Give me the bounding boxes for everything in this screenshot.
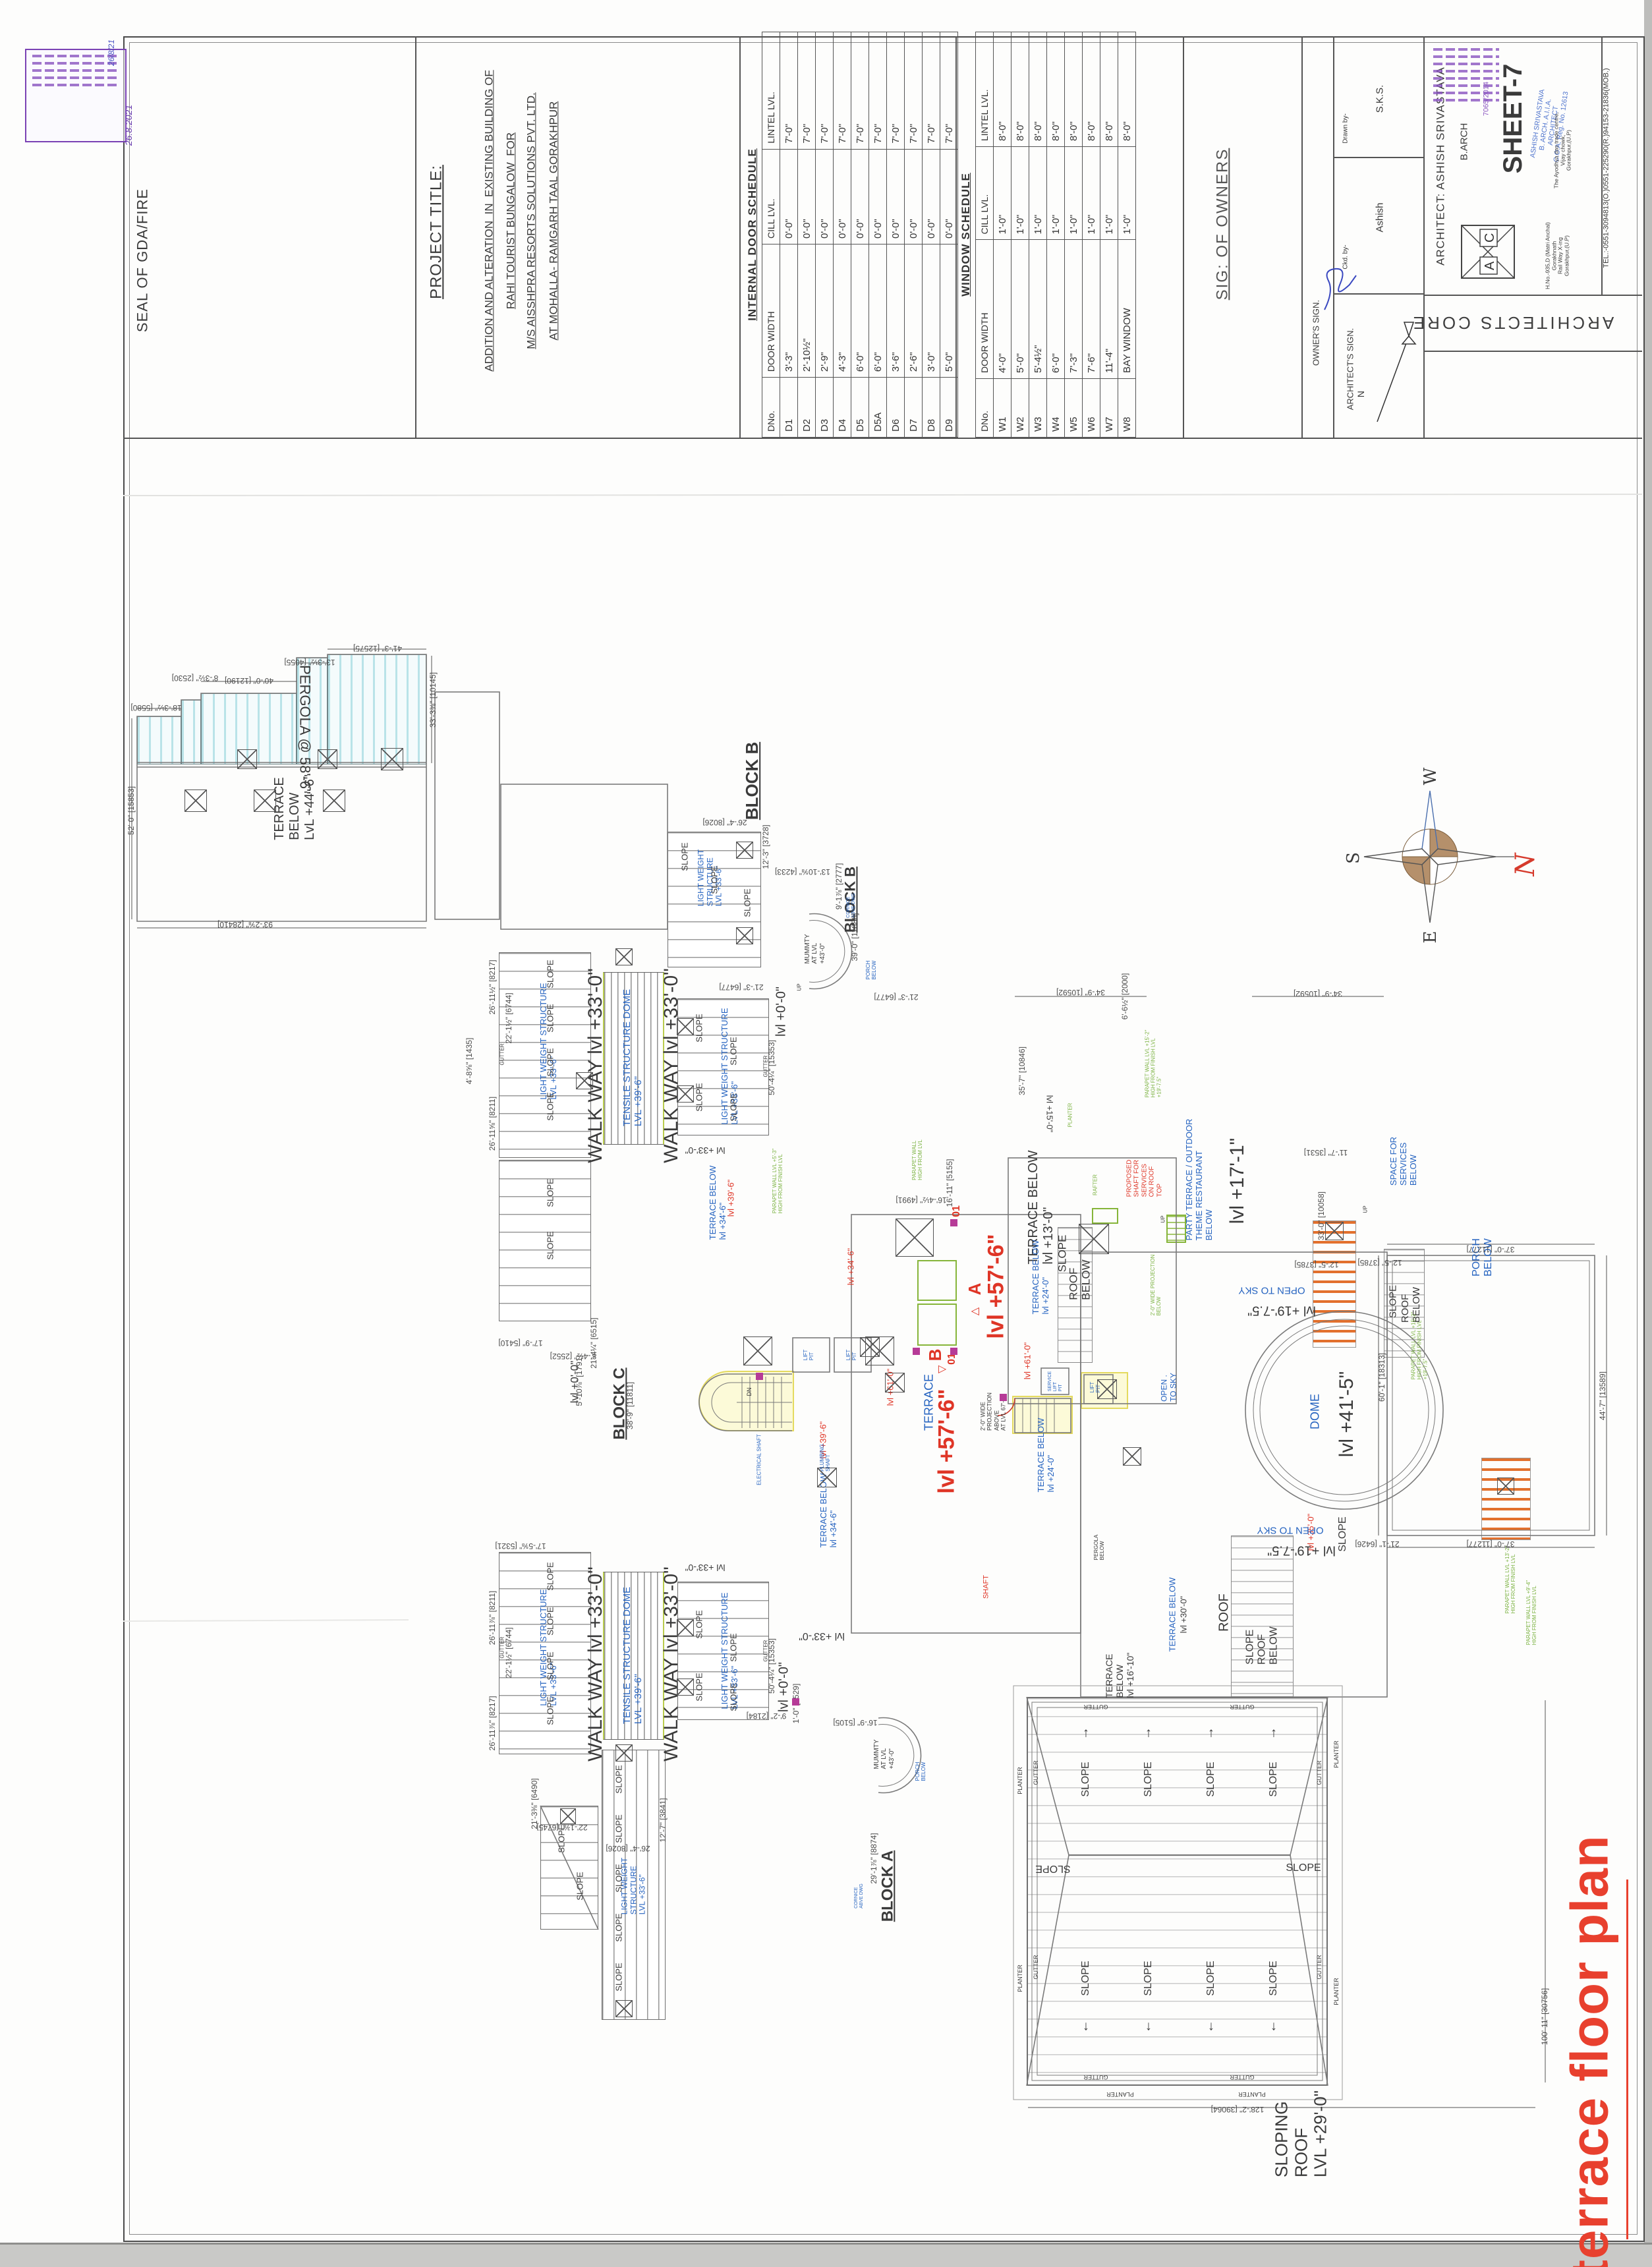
plan-label: lvl +41'-5" — [1336, 1371, 1358, 1458]
dimension-label: 44'-7" [13589] — [1599, 1371, 1608, 1420]
plan-label: PERGOLA BELOW — [1093, 1535, 1105, 1561]
section-node — [792, 1698, 799, 1706]
plan-label: SERVICE LIFT PIT — [1048, 1371, 1064, 1392]
plan-label: PROPOSED SHAFT FOR SERVICES ON ROOF TOP — [1126, 1160, 1164, 1197]
dimension-label: 12'-5" [3785] — [1294, 1259, 1338, 1269]
plan-label: SLOPE — [615, 1963, 625, 1991]
column-marker — [677, 1619, 694, 1636]
dimension-label: 29'-1⅞" [8874] — [870, 1833, 879, 1883]
plan-label: SLOPE ROOF BELOW — [1245, 1626, 1281, 1665]
plan-label: SLOPE — [743, 888, 753, 917]
plan-label: SLOPE — [695, 1610, 705, 1638]
plan-label: SLOPE — [615, 1814, 625, 1843]
dimension-label: 33'-3⅜" [10145] — [429, 672, 438, 728]
plan-label: BLOCK A — [878, 1851, 896, 1922]
plan-label: lvl +15'-0" — [1044, 1095, 1054, 1133]
plan-label: GUTTER — [1084, 2074, 1108, 2080]
section-node — [1000, 1394, 1007, 1401]
plan-label: SLOPE — [1143, 1961, 1154, 1995]
column-marker — [1123, 1447, 1141, 1466]
dimension-label: 22'-1½" [6744] — [505, 1627, 514, 1678]
plan-label: PARAPET WALL HIGH FROM LVL — [911, 1139, 923, 1180]
plan-label: GUTTER — [1033, 1955, 1039, 1980]
column-marker — [615, 1744, 633, 1762]
dimension-label: 13'-3½" [4055] — [284, 657, 335, 666]
dimension-label: 18'-3½" [5580] — [130, 703, 181, 712]
plan-label: PORCH BELOW — [915, 1762, 926, 1781]
plan-label: PLANTER — [1238, 2091, 1266, 2098]
dimension-label: 13'-10⅝" [4233] — [775, 867, 830, 876]
plan-label: WALK WAY lvl +33'-0" — [660, 1566, 683, 1762]
dimension-label: 26'-4" [8026] — [606, 1843, 650, 1852]
plan-label: LIGHT WEIGHT STRUCTURE LVL +33'-6" — [539, 983, 559, 1099]
dimension-label: 17'-9" [5410] — [498, 1338, 542, 1347]
compass-w: W — [1421, 768, 1441, 786]
column-marker — [576, 1072, 593, 1089]
plan-label: SLOPE — [546, 1178, 556, 1207]
column-marker — [677, 1018, 694, 1035]
plan-label: SLOPE — [546, 1696, 556, 1725]
section-node — [756, 1373, 763, 1380]
plan-label: lvl +33'-0" — [685, 1562, 726, 1572]
plan-label: ↑ — [1083, 1726, 1089, 1741]
dimension-label: 100'-11" [30756] — [1541, 1988, 1550, 2045]
compass-n: N — [1511, 853, 1541, 876]
column-marker — [381, 748, 403, 770]
column-marker — [1097, 1379, 1117, 1399]
plan-label: lvl +57'-6" — [984, 1234, 1010, 1338]
plan-label: ROOF — [1217, 1593, 1232, 1632]
compass-s: S — [1344, 852, 1364, 864]
dimension-label: 11'-7" [3531] — [1304, 1147, 1348, 1157]
plan-label: SLOPE — [1387, 1285, 1398, 1318]
plan-label: lvl +33'-0" — [799, 1630, 845, 1642]
plan-label: MUMMTY AT LVL +43'-0" — [873, 1740, 896, 1769]
column-marker — [885, 1373, 905, 1392]
plan-label: SLOPING ROOF LVL +29'-0" — [1272, 2090, 1331, 2177]
plan-label: ↓ — [1083, 2019, 1089, 2034]
plan-label: GUTTER — [1316, 1761, 1323, 1785]
dimension-label: 22'-1½" [6744] — [505, 992, 514, 1043]
column-marker — [615, 2000, 633, 2017]
plan-label: BLOCK B — [743, 742, 762, 820]
dimension-label: 93'-2⅝" [28410] — [217, 919, 273, 929]
plan-label: OPEN TO SKY — [1238, 1284, 1305, 1296]
dimension-label: 12'-3" [3728] — [762, 824, 771, 869]
plan-label: lvl +39'-6" — [727, 1180, 737, 1217]
plan-label: OPEN TO SKY — [1257, 1524, 1323, 1535]
dimension-label: 21'-3⅜" [6490] — [530, 1778, 540, 1829]
plan-label: SHAFT — [983, 1575, 991, 1599]
dimension-label: 60'-1" [18313] — [1378, 1353, 1387, 1402]
plan-label: PLANTER — [1017, 1767, 1023, 1794]
plan-label: RAFTER — [1092, 1174, 1098, 1195]
column-marker — [323, 789, 345, 812]
plan-label: GUTTER — [1033, 1761, 1039, 1785]
dimension-label: 21'-4¼" [6515] — [590, 1317, 599, 1368]
plan-label: PARAPET WALL LVL +5'-3" HIGH FROM FINISH… — [772, 1149, 783, 1213]
plan-label: PLANTER — [1017, 1965, 1023, 1992]
column-marker — [677, 1085, 694, 1103]
dimension-label: 34'-9" [10592] — [1056, 987, 1105, 996]
column-marker — [736, 842, 753, 859]
dimension-label: 37'-0" [11277] — [1466, 1244, 1514, 1253]
plan-label: SLOPE — [1268, 1961, 1280, 1995]
column-marker — [185, 789, 207, 812]
dimension-label: 26'-11⅞" [8211] — [488, 1591, 498, 1645]
dimension-label: 12'-5" [3785] — [1357, 1257, 1402, 1267]
plan-label: SLOPE — [546, 960, 556, 988]
column-marker — [860, 1337, 880, 1357]
plan-label: SLOPE — [1268, 1762, 1280, 1796]
plan-label: UP — [1160, 1215, 1166, 1222]
dimension-label: 21'-3" [6477] — [719, 982, 763, 991]
column-marker — [237, 749, 257, 769]
plan-label: A — [965, 1283, 985, 1296]
plan-label: LIFT PIT — [845, 1350, 857, 1360]
owner-signature — [1324, 269, 1356, 310]
plan-label: SPACE FOR SERVICES BELOW — [1389, 1137, 1418, 1186]
dimension-label: 16'-9" [5105] — [833, 1717, 877, 1727]
plan-label: UP — [1362, 1205, 1368, 1213]
plan-label: PLANTER — [1333, 1978, 1340, 2005]
column-marker — [1079, 1224, 1109, 1254]
section-node — [913, 1348, 920, 1355]
section-node — [950, 1219, 957, 1226]
plan-label: lvl +57'-6" — [934, 1389, 960, 1493]
plan-label: SLOPE — [695, 1673, 705, 1701]
plan-label: PARAPET WALL LVL +15'-2" HIGH FROM FINIS… — [1410, 1312, 1428, 1380]
column-marker — [318, 749, 337, 769]
plan-label: SLOPE — [546, 1231, 556, 1259]
plan-label: TERRACE BELOW lvl +24'-0" — [1031, 1240, 1051, 1315]
plan-label: B — [926, 1349, 946, 1362]
plan-label: lvl +30'-0" — [1180, 1596, 1189, 1634]
plan-label: SLOPE — [576, 1872, 586, 1900]
column-marker — [1325, 1222, 1344, 1240]
plan-label: CORNICE ABVE DWG — [854, 1883, 865, 1908]
compass-rose — [1364, 791, 1514, 923]
dimension-label: 9'-1⅞" [2777] — [835, 863, 844, 910]
plan-label: SLOPE — [729, 1633, 739, 1661]
plan-label: ↑ — [1208, 1726, 1214, 1741]
plan-label: GUTTER — [1084, 1704, 1108, 1710]
plan-label: lvl +19'-7.5" — [1267, 1543, 1336, 1558]
plan-label: △ — [969, 1307, 981, 1315]
plan-label: DN — [746, 1388, 753, 1396]
plan-label: SLOPE — [615, 1864, 625, 1892]
column-marker — [743, 1336, 772, 1365]
dimension-label: 50'-4¼" [15353] — [768, 1638, 777, 1694]
plan-label: SLOPE — [1286, 1862, 1321, 1874]
plan-label: ↑ — [1270, 1726, 1277, 1741]
dimension-label: 16'-11" [5155] — [946, 1159, 955, 1207]
plan-label: lvl +19'-7.5" — [1247, 1303, 1316, 1318]
plan-label: SLOPE — [1337, 1516, 1349, 1551]
plan-label: PLANTER — [1067, 1103, 1073, 1128]
plan-linework — [0, 0, 1652, 2267]
plan-label: SLOPE — [546, 1607, 556, 1635]
column-marker — [1497, 1478, 1514, 1495]
column-marker — [817, 1468, 837, 1487]
plan-label: TERRACE BELOW — [1168, 1578, 1178, 1652]
plan-label: SLOPE — [546, 1004, 556, 1032]
plan-label: lvl +17'-1" — [1226, 1138, 1249, 1224]
plan-label: OPEN . TO SKY — [1160, 1373, 1178, 1402]
dimension-label: 4'-8⅝" [1435] — [465, 1038, 474, 1085]
plan-label: lvl +33'-0" — [685, 1145, 726, 1155]
plan-label: PLANTER — [1106, 2091, 1134, 2098]
plan-label: PARAPET WALL LVL +13'-2" HIGH FROM FINIS… — [1504, 1546, 1516, 1614]
plan-label: WALK WAY lvl +33'-0" — [584, 1566, 607, 1762]
plan-label: ↓ — [1270, 2019, 1277, 2034]
dimension-label: 50'-4¼" [15353] — [768, 1040, 777, 1095]
plan-label: ▷ — [938, 1363, 946, 1375]
plan-label: 2'-0" WIDE PROJECTION BELOW — [1150, 1255, 1162, 1316]
plan-label: SLOPE — [729, 1682, 739, 1711]
dimension-label: 5'-10⅞" [1791] — [575, 1355, 584, 1406]
plan-label: lvl +0'-0" — [774, 987, 789, 1037]
plan-label: MUMMTY AT LVL +43'-0" — [804, 934, 826, 964]
plan-label: TERRACE BELOW LvL +44'-6" — [272, 774, 317, 840]
plan-label: ELECTRICAL SHAFT — [756, 1434, 762, 1485]
dimension-label: 38'-9" [11811] — [626, 1382, 635, 1429]
column-marker — [736, 927, 753, 944]
dimension-label: 17'-5⅝" [5321] — [495, 1541, 546, 1550]
dimension-label: 52'-0" [15853] — [127, 786, 136, 835]
plan-label: SLOPE — [546, 1048, 556, 1076]
plan-label: SLOPE — [615, 1913, 625, 1941]
plan-label: SLOPE — [710, 865, 720, 894]
dimension-label: 12'-7" [3841] — [659, 1798, 668, 1842]
plan-label: GUTTER — [1230, 1704, 1255, 1710]
dimension-label: 8'-3½" [2530] — [172, 673, 219, 682]
dimension-label: 37'-0" [11277] — [1466, 1539, 1514, 1548]
plan-label: TERRACE BELOW lvl +34'-6" — [708, 1166, 728, 1240]
plan-label: SLOPE — [1080, 1762, 1092, 1796]
dimension-label: 26'-11⅝" [8211] — [488, 1097, 498, 1151]
dimension-label: 34'-9" [10592] — [1294, 989, 1342, 998]
drawing-sheet: 26.8.2021 26/8/21 SEAL OF GDA/FIRE PROJE… — [0, 0, 1652, 2267]
plan-label: 01 — [951, 1205, 963, 1217]
plan-label: WALK WAY lvl +33'-0" — [584, 968, 607, 1163]
dimension-label: 39'-0" [11888] — [851, 913, 860, 961]
compass-e: E — [1421, 931, 1441, 944]
dimension-label: 40'-0" [12190] — [225, 675, 273, 685]
plan-label: GUTTER — [1230, 2074, 1255, 2080]
plan-label: PARAPET WALL LVL +9'-4" HIGH FROM FINISH… — [1525, 1580, 1537, 1645]
dimension-label: 35'-7" [10846] — [1018, 1047, 1027, 1095]
plan-label: SLOPE — [729, 1093, 739, 1121]
plan-label: LIFT PIT — [803, 1350, 814, 1360]
column-marker — [896, 1219, 934, 1257]
dimension-label: 41'-3" [12575] — [353, 643, 402, 652]
plan-label: ROOF BELOW — [1068, 1259, 1093, 1300]
plan-label: SLOPE — [1205, 1961, 1217, 1995]
plan-label: lvl +34'-6" — [847, 1248, 857, 1286]
plan-label: SLOPE — [546, 1092, 556, 1120]
dimension-label: 16'-4½" [4991] — [896, 1195, 946, 1204]
dimension-label: 21'-1" [6426] — [1355, 1539, 1399, 1548]
plan-label: lvl +0'-0" — [777, 1662, 792, 1712]
dimension-label: 26'-11½" [8217] — [488, 960, 498, 1014]
section-node — [950, 1348, 957, 1355]
plan-label: PARTY TERRACE / OUTDOOR THEME RESTAURANT… — [1185, 1119, 1214, 1241]
plan-label: PORCH BELOW — [865, 961, 877, 980]
plan-label: TERRACE BELOW lvl +16'-10" — [1104, 1653, 1136, 1698]
dimension-label: 9'-2" [2184] — [747, 1711, 787, 1720]
plan-label: PARAPET WALL LVL +15'-2" HIGH FROM FINIS… — [1144, 1030, 1162, 1098]
plan-label: lvl +61'-0" — [1023, 1342, 1033, 1380]
plan-label: UP — [796, 983, 802, 990]
dimension-label: 26'-4" [8026] — [702, 817, 747, 826]
plan-label: SLOPE — [546, 1651, 556, 1680]
plan-label: SLOPE — [695, 1014, 705, 1042]
plan-label: SLOPE — [1205, 1762, 1217, 1796]
column-marker — [560, 1808, 576, 1824]
plan-title: terrace floor plan — [1559, 1835, 1619, 2267]
column-marker — [254, 789, 276, 812]
plan-label: SLOPE — [729, 1037, 739, 1065]
dimension-label: 21'-3" [6477] — [874, 992, 918, 1001]
column-marker — [677, 1679, 694, 1696]
dimension-label: 128'-2" [39064] — [1211, 2104, 1265, 2113]
plan-label: GUTTER — [499, 1044, 505, 1066]
plan-label: SLOPE — [1143, 1762, 1154, 1796]
plan-label: SLOPE — [1035, 1862, 1070, 1874]
dimension-label: 6'-6½" [2000] — [1121, 973, 1130, 1020]
plan-label: PLANTER — [1333, 1740, 1340, 1768]
plan-label: LIGHT WEIGHT STRUCTURE LVL +33'-6" — [620, 1858, 647, 1914]
plan-label: DOME — [1309, 1394, 1323, 1429]
dimension-label: 26'-11⅞" [8217] — [488, 1696, 498, 1750]
plan-label: ↓ — [1208, 2019, 1214, 2034]
plan-label: TENSILE STRUCTURE DOME LVL +39'-6" — [621, 1587, 644, 1724]
plan-label: WALK WAY lvl +33'-0" — [660, 968, 683, 1163]
plan-title-underline — [1626, 1880, 1628, 2239]
plan-label: SLOPE — [681, 842, 691, 871]
plan-label: ↓ — [1145, 2019, 1152, 2034]
plan-label: SLOPE — [1080, 1961, 1092, 1995]
plan-label: SLOPE — [546, 1562, 556, 1590]
plan-label: TERRACE BELOW lvl +24'-0" — [1037, 1418, 1056, 1493]
plan-label: ↑ — [1145, 1726, 1152, 1741]
column-marker — [615, 948, 633, 965]
plan-label: TENSILE STRUCTURE DOME LVL +39'-6" — [621, 989, 644, 1126]
plan-label: SLOPE — [695, 1083, 705, 1111]
plan-label: GUTTER — [1316, 1955, 1323, 1980]
plan-label: SLOPE — [615, 1765, 625, 1793]
